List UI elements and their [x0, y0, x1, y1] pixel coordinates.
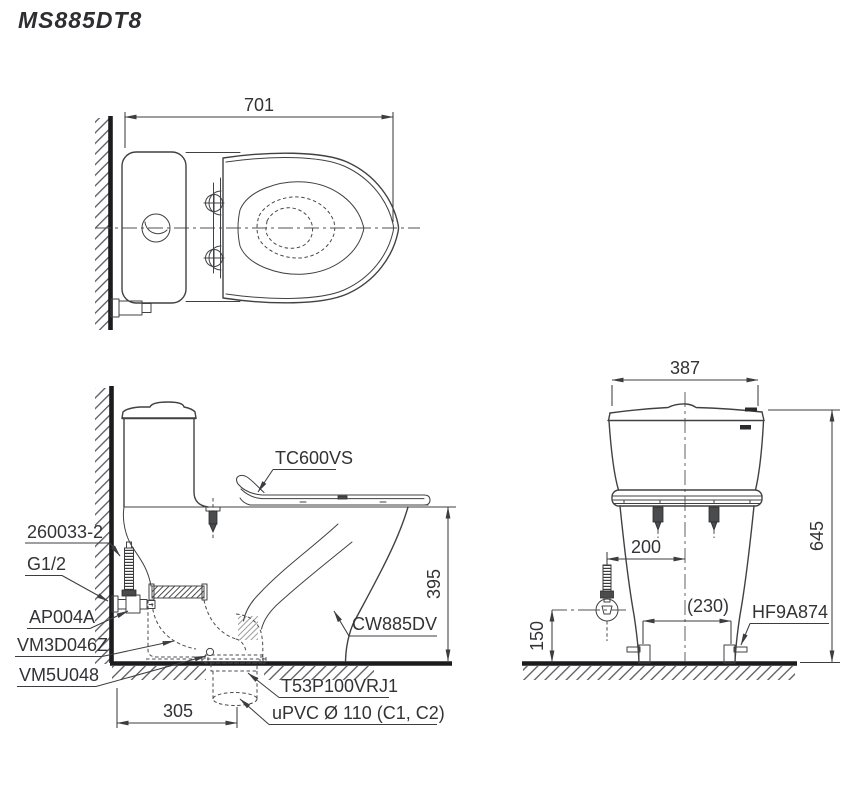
svg-text:CW885DV: CW885DV	[352, 614, 437, 634]
dim-outlet-offset-value: 305	[163, 701, 193, 721]
svg-text:AP004A: AP004A	[29, 607, 95, 627]
seat-rear	[612, 490, 762, 506]
floor-bolt-right	[724, 645, 747, 663]
wall-hatching-top	[95, 118, 109, 330]
svg-text:VM3D046Z: VM3D046Z	[17, 635, 108, 655]
label-hf9a874: HF9A874	[741, 602, 829, 645]
supply-hose-side	[122, 542, 136, 596]
bowl-front-profile	[346, 507, 409, 661]
dim-supply-height-value: 150	[527, 621, 547, 651]
hinge-bolts-rear	[653, 506, 719, 538]
dim-total-height-value: 645	[807, 521, 827, 551]
trapway-internals	[146, 584, 268, 659]
seat-damper	[338, 496, 347, 499]
tank-lid-side	[122, 402, 196, 418]
dimension-645: 645	[768, 410, 840, 663]
svg-text:G1/2: G1/2	[27, 554, 66, 574]
dim-tank-width-value: 387	[670, 358, 700, 378]
brand-mark-tank	[740, 425, 751, 430]
label-tc600vs: TC600VS	[258, 448, 353, 492]
dim-bolt-spacing-value: (230)	[687, 596, 729, 616]
supply-rear	[585, 565, 629, 641]
dimension-230: (230)	[643, 596, 731, 644]
toilet-dimension-drawing: MS885DT8 701	[0, 0, 850, 802]
tank-rear	[608, 404, 764, 490]
dim-rim-height-value: 395	[424, 569, 444, 599]
dimension-150: 150	[527, 610, 596, 662]
label-upvc-pipe: uPVC Ø 110 (C1, C2)	[240, 699, 445, 725]
pedestal-rear	[620, 506, 754, 662]
dimension-200: 200	[607, 537, 685, 566]
dimension-395: 395	[412, 507, 456, 661]
svg-text:uPVC Ø 110 (C1, C2): uPVC Ø 110 (C1, C2)	[272, 703, 445, 723]
top-view: 701	[95, 95, 420, 330]
seat-bolt-side	[206, 498, 220, 540]
dimension-305: 305	[117, 688, 237, 728]
technical-drawing-sheet: MS885DT8 701	[0, 0, 850, 802]
label-vm3d046z: VM3D046Z	[15, 635, 174, 657]
dim-supply-offset-value: 200	[631, 537, 661, 557]
page-title: MS885DT8	[18, 7, 142, 33]
floor-hatching-rear	[523, 666, 795, 680]
outlet-flange-side	[202, 655, 266, 671]
svg-text:TC600VS: TC600VS	[275, 448, 353, 468]
rear-view: 387 645 200 (230) 150 HF9	[522, 358, 840, 680]
floor-bolt-left	[627, 645, 650, 663]
drain-pipe-side	[213, 671, 257, 706]
dim-depth-value: 701	[244, 95, 274, 115]
brand-mark-lid	[745, 408, 757, 412]
tank-top	[122, 152, 186, 303]
svg-text:T53P100VRJ1: T53P100VRJ1	[281, 676, 398, 696]
svg-text:260033-2: 260033-2	[27, 522, 103, 542]
gasket-coil	[152, 586, 204, 598]
side-view: 395 305 TC600VS 260033-2 G1/2 AP004A	[15, 386, 456, 728]
svg-text:HF9A874: HF9A874	[752, 602, 828, 622]
svg-text:VM5U048: VM5U048	[19, 665, 99, 685]
bowl-contour-outer	[257, 197, 335, 258]
